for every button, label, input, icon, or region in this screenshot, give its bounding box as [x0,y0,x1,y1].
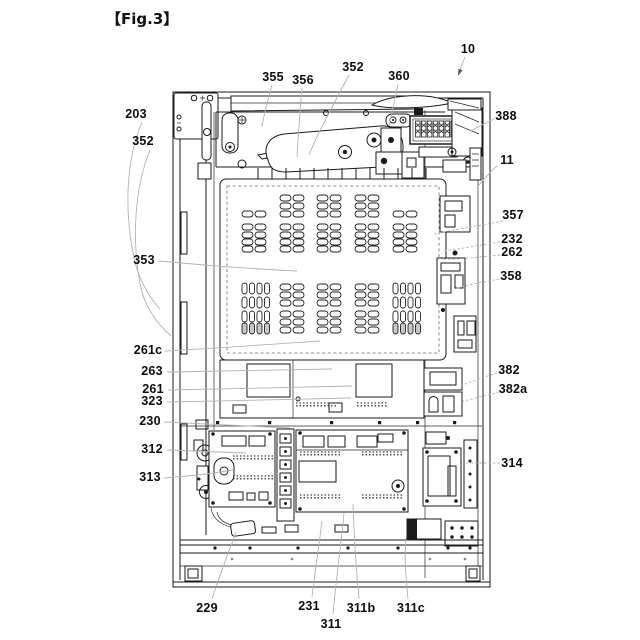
leader-arrowhead-10 [458,69,463,76]
ref-label-261c: 261c [134,343,163,357]
ref-label-232: 232 [501,232,522,246]
mid-board-area [220,360,424,418]
ref-label-203: 203 [125,107,146,121]
leader-line-203 [128,122,160,309]
ref-label-313: 313 [139,470,160,484]
ref-label-11: 11 [500,153,514,167]
bottom-board-main [296,430,408,512]
ref-label-356: 356 [292,73,313,87]
ref-label-352t: 352 [342,60,363,74]
ref-label-311c: 311c [397,601,425,615]
ref-label-355: 355 [262,70,283,84]
ref-label-382: 382 [498,363,519,377]
ref-label-352l: 352 [132,134,153,148]
ref-label-262: 262 [501,245,522,259]
ref-label-358: 358 [500,269,521,283]
ref-label-388: 388 [495,109,516,123]
ref-label-382a: 382a [499,382,528,396]
ref-label-230: 230 [139,414,160,428]
ref-label-360: 360 [388,69,409,83]
patent-figure-page: 【Fig.3】 10355356352360388113572322623583… [0,0,640,640]
board-connector-strip [277,429,294,521]
bottom-board-left [209,431,275,507]
ref-label-323: 323 [141,394,162,408]
figure-title: 【Fig.3】 [106,8,178,29]
ref-label-229: 229 [196,601,217,615]
ref-label-311b: 311b [347,601,376,615]
ref-label-263: 263 [141,364,162,378]
ref-label-357: 357 [502,208,523,222]
ref-label-231: 231 [298,599,319,613]
ref-label-314: 314 [501,456,522,470]
leader-line-352l [135,150,171,336]
ref-label-311: 311 [321,617,342,631]
vent-panel [220,179,446,360]
ref-label-10: 10 [461,42,475,56]
patent-drawing [0,0,640,640]
ref-label-353: 353 [133,253,154,267]
ref-label-312: 312 [141,442,162,456]
